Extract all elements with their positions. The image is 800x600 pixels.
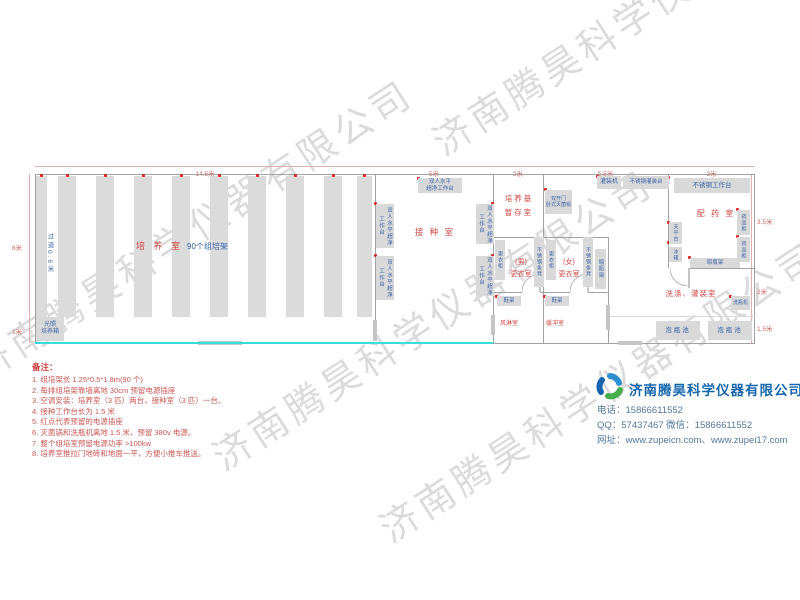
equipment-sterilizer: 双开门 卧式灭菌锅 (545, 190, 572, 214)
culture-rack (357, 176, 372, 317)
power-outlet-dot (363, 174, 366, 177)
wall (690, 268, 755, 269)
equipment-medicine-cabinet: 药品柜 (737, 210, 750, 235)
power-outlet-dot (294, 174, 297, 177)
culture-room-label: 培 养 室 90个组培架 (112, 239, 252, 252)
equipment-filling-table: 不锈钢灌装台 (623, 176, 669, 189)
dim-left-main: 8米 (12, 242, 22, 252)
wall (608, 237, 609, 305)
dim-right-dispensing: 3.5米 (757, 216, 773, 226)
watermark-text: 济南腾昊科学仪器有限公司 (420, 0, 800, 166)
equipment-light-incubator: 光照 培养箱 (36, 317, 64, 341)
power-outlet-dot (40, 174, 43, 177)
note-item: 8. 培养室推拉门地砖和地面一平，方便小推车推送。 (32, 449, 225, 460)
equipment-label: 光照 (44, 322, 56, 330)
equipment-bottle-washer: 洗瓶机 (731, 296, 750, 310)
room-label-line: 暂存室 (496, 206, 542, 220)
notes-title: 备注： (32, 361, 225, 373)
wall (608, 316, 755, 317)
wall (493, 292, 522, 293)
equipment-label: 培养箱 (41, 329, 59, 337)
note-item: 7. 整个组培室预留电源功率 >100kw (32, 439, 225, 450)
note-item: 5. 红点代表预留的电源插座 (32, 417, 225, 428)
watermark-text: 济南腾昊科学仪器有限公司 (200, 154, 663, 481)
equipment-ss-workbench: 不锈钢工作台 (674, 178, 750, 193)
equipment-bottle-rack: 晾瓶架 (690, 258, 740, 268)
wall (540, 292, 570, 293)
dim-left-line (29, 174, 30, 343)
equipment-label: 双人水平 (429, 179, 451, 186)
medium-storage-label: 培养基 暂存室 (496, 192, 542, 220)
company-logo-icon (596, 372, 624, 400)
company-name: 济南腾昊科学仪器有限公司 (629, 379, 800, 399)
equipment-clean-bench: 双人水平超净工作台 (376, 204, 394, 248)
air-shower-label: 风淋室 (495, 318, 523, 327)
company-qq-wechat: QQ：57437467 微信：15866611552 (597, 417, 752, 431)
door-leaf (606, 305, 610, 330)
power-outlet-dot (180, 174, 183, 177)
note-item: 4. 接种工作台长为 1.5 米 (32, 407, 225, 418)
note-item: 6. 灭菌锅和洗瓶机离地 1.5 米，预留 380v 电源。 (32, 428, 225, 439)
equipment-label: 超净工作台 (426, 186, 454, 193)
equipment-clean-bench: 双人水平超净工作台 (476, 204, 494, 244)
buffer-room-label: 缓冲室 (541, 318, 569, 327)
equipment-ss-bench: 不锈钢条凳 (583, 237, 593, 287)
culture-rack (286, 176, 304, 317)
floorplan-canvas: 济南腾昊科学仪器有限公司 济南腾昊科学仪器有限公司 济南腾昊科学仪器有限公司 济… (0, 0, 800, 600)
equipment-clean-bench: 双人水平超净工作台 (476, 256, 494, 296)
power-outlet-dot (332, 174, 335, 177)
note-item: 1. 组培架长 1.25*0.5*1.8m(90 个) (32, 375, 225, 386)
equipment-balance-table: 天平台 (669, 222, 682, 244)
culture-rack (58, 176, 76, 317)
equipment-soak-pool: 泡瓶池 (708, 321, 752, 340)
company-website: 网址：www.zupeicn.com、www.zupei17.com (597, 432, 788, 446)
equipment-clean-bench: 双人水平 超净工作台 (418, 178, 462, 193)
room-rack-count: 90个组培架 (187, 241, 228, 252)
aisle-label: 过道0.6米 (44, 233, 54, 305)
company-phone: 电话：15866611552 (597, 402, 683, 416)
equipment-fridge: 冰箱 (669, 247, 682, 262)
notes-block: 备注： 1. 组培架长 1.25*0.5*1.8m(90 个) 2. 每排组培架… (32, 361, 225, 460)
equipment-filling-machine: 灌装机 (597, 176, 621, 189)
door-leaf (618, 341, 642, 345)
wall (543, 174, 544, 237)
note-item: 3. 空调安装：培养室（3 匹）两台，接种室（3 匹）一台。 (32, 396, 225, 407)
room-label-line: 培养基 (496, 192, 542, 206)
equipment-label: 卧式灭菌锅 (546, 202, 571, 209)
equipment-shoe-rack: 鞋架 (497, 296, 521, 306)
dim-left-bottom: 1米 (12, 326, 22, 336)
equipment-bottle-rack: 晾瓶架 (595, 249, 606, 289)
dispensing-room-label: 配 药 室 (694, 208, 738, 219)
power-outlet-dot (256, 174, 259, 177)
dim-right-line (751, 174, 752, 343)
power-outlet-dot (66, 174, 69, 177)
wall (608, 330, 609, 343)
note-item: 2. 每排组培架靠墙离地 30cm 预留电源插座 (32, 386, 225, 397)
door-arc (670, 268, 688, 286)
wall (588, 292, 609, 293)
door-leaf (373, 320, 377, 341)
inoculation-room-label: 接 种 室 (398, 226, 472, 238)
dim-right-washing: 2米 (757, 286, 767, 296)
power-outlet-dot (104, 174, 107, 177)
wall (493, 335, 494, 344)
equipment-ss-bench: 不锈钢条凳 (534, 237, 544, 287)
power-outlet-dot (218, 174, 221, 177)
equipment-clean-bench: 双人水平超净工作台 (376, 256, 394, 300)
door-leaf (688, 268, 690, 288)
room-name: 培 养 室 (136, 239, 183, 252)
equipment-soak-pool: 泡瓶池 (656, 321, 700, 340)
culture-rack (324, 176, 342, 317)
power-outlet-dot (142, 174, 145, 177)
wall (754, 174, 755, 344)
dim-right-pool: 1.5米 (757, 323, 773, 333)
equipment-shoe-rack: 鞋架 (545, 296, 569, 306)
window-line (35, 342, 493, 344)
washing-room-label: 洗涤、灌装室 (658, 288, 724, 299)
